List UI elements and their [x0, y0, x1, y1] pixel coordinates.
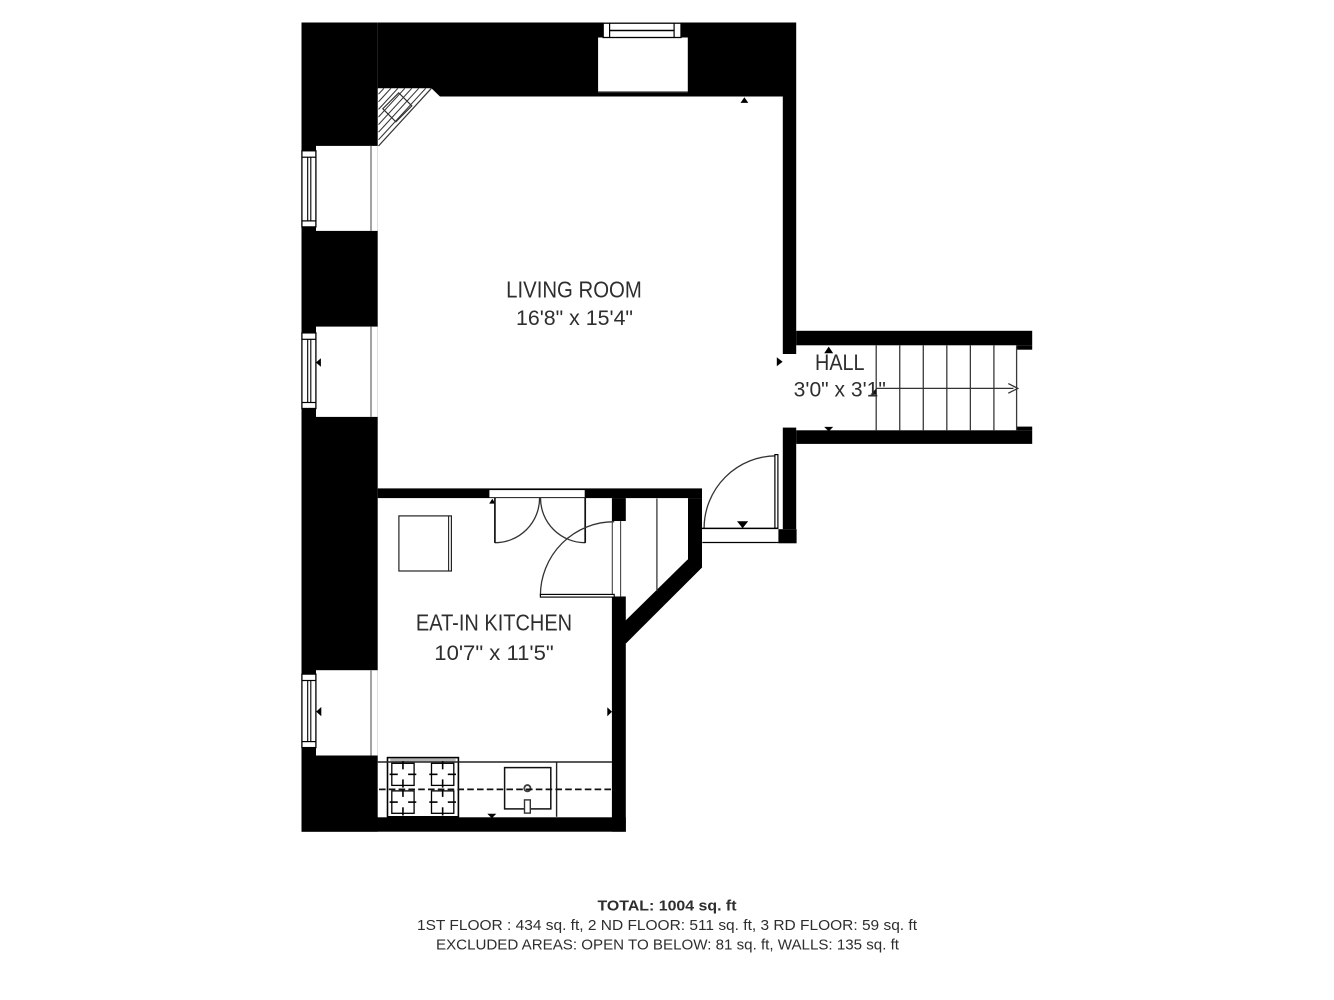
svg-text:HALL: HALL [815, 350, 865, 375]
svg-text:16'8" x 15'4": 16'8" x 15'4" [516, 307, 633, 330]
svg-text:3'0" x 3'1": 3'0" x 3'1" [794, 379, 886, 402]
svg-text:TOTAL: 1004 sq. ft: TOTAL: 1004 sq. ft [598, 898, 737, 915]
svg-text:LIVING ROOM: LIVING ROOM [506, 277, 642, 303]
svg-text:EAT-IN KITCHEN: EAT-IN KITCHEN [416, 609, 572, 635]
svg-text:10'7" x 11'5": 10'7" x 11'5" [434, 642, 553, 665]
svg-text:1ST FLOOR : 434 sq. ft, 2 ND F: 1ST FLOOR : 434 sq. ft, 2 ND FLOOR: 511 … [417, 917, 918, 934]
svg-text:EXCLUDED AREAS: OPEN TO BELOW:: EXCLUDED AREAS: OPEN TO BELOW: 81 sq. ft… [436, 937, 900, 954]
